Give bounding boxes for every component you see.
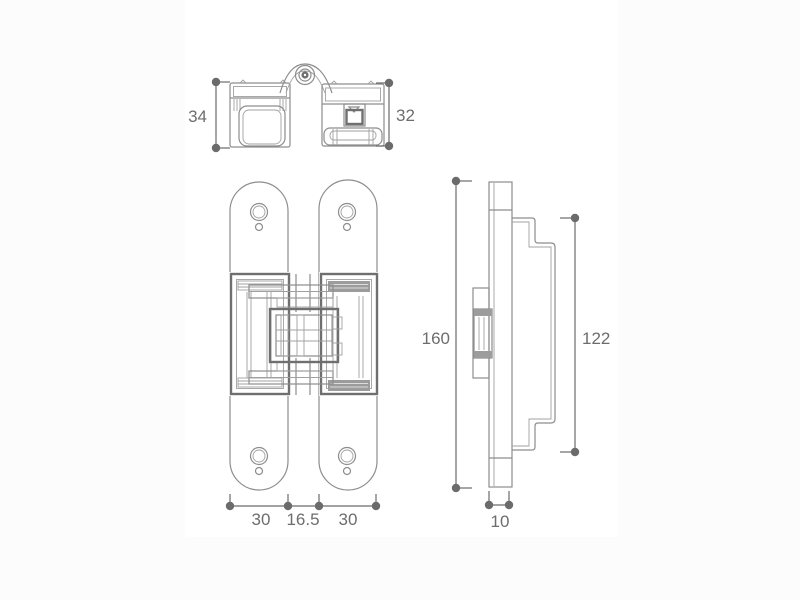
dim-label-34: 34 (188, 107, 207, 126)
dim-label-30-right: 30 (339, 510, 358, 529)
dim-label-16-5: 16.5 (286, 510, 319, 529)
technical-drawing-page: 34 32 (0, 0, 800, 600)
dim-label-30-left: 30 (252, 510, 271, 529)
hinge-technical-drawing: 34 32 (0, 0, 800, 600)
dim-label-32: 32 (396, 106, 415, 125)
dim-label-10: 10 (491, 512, 510, 531)
dim-label-122: 122 (582, 329, 610, 348)
dim-label-160: 160 (422, 329, 450, 348)
